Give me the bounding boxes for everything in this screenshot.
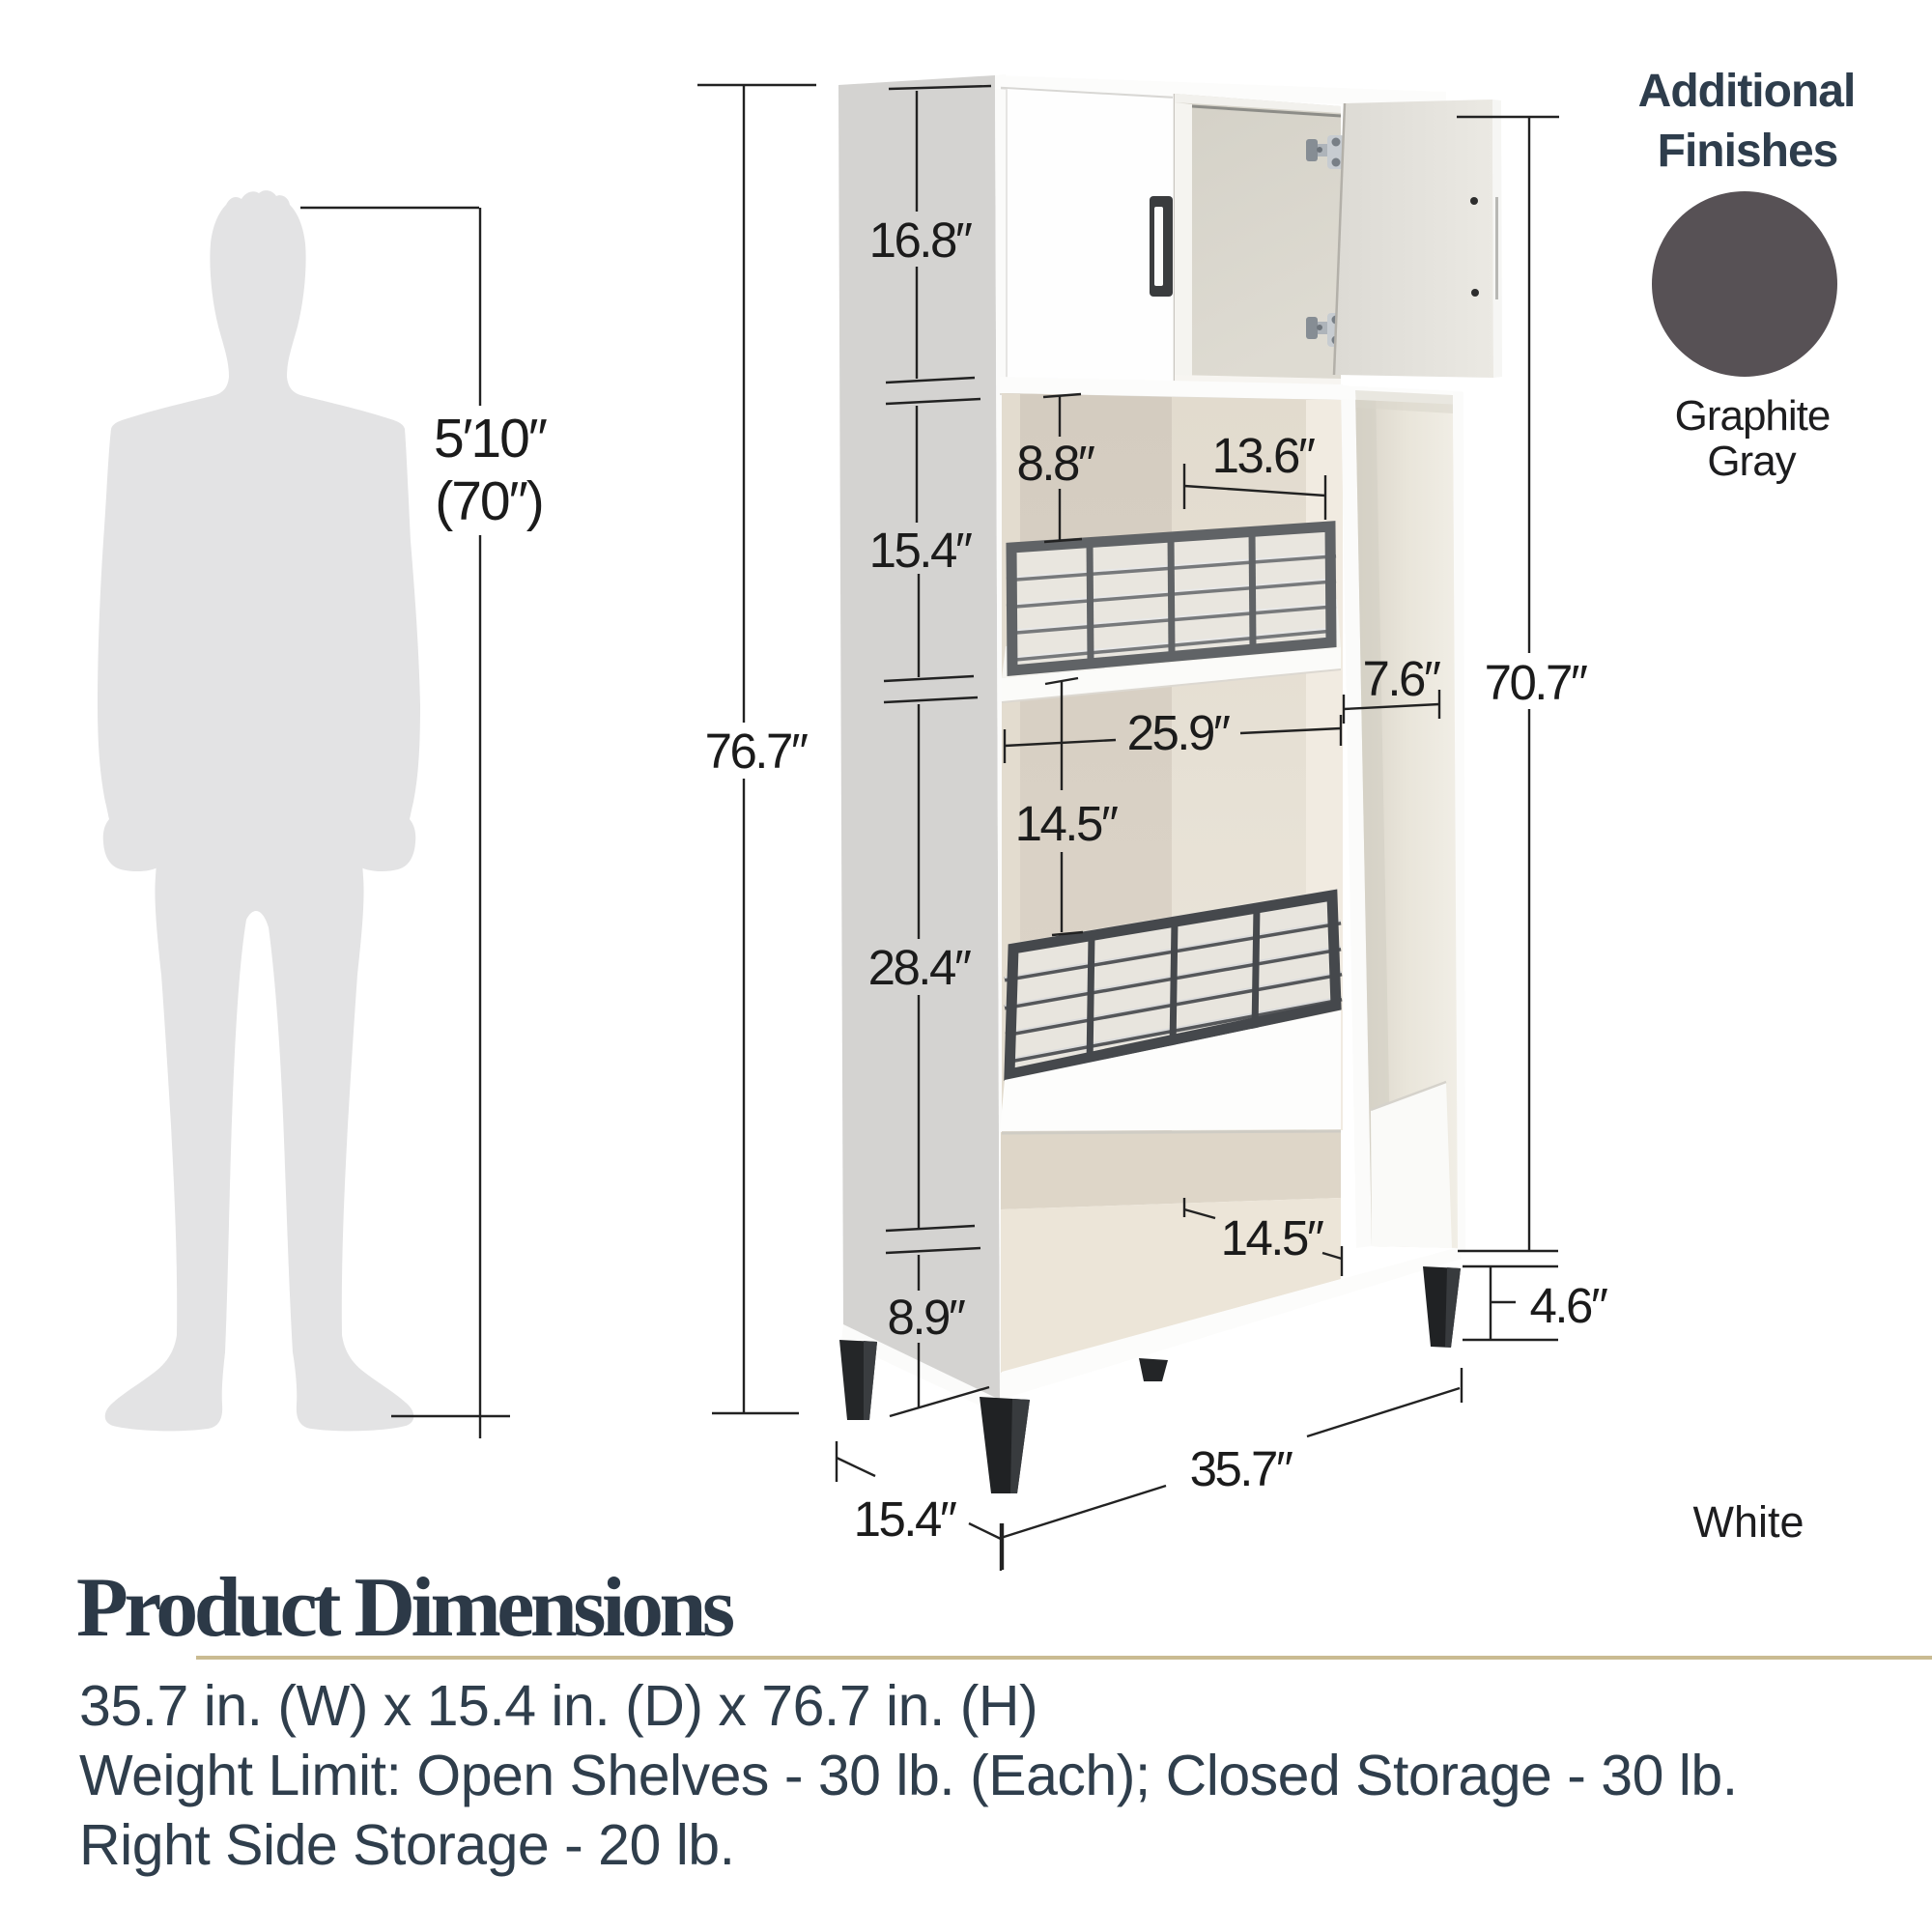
svg-text:5′10″: 5′10″ <box>434 408 548 469</box>
svg-text:7.6″: 7.6″ <box>1363 651 1441 706</box>
svg-text:25.9″: 25.9″ <box>1127 705 1231 760</box>
svg-text:Gray: Gray <box>1707 438 1796 485</box>
svg-text:15.4″: 15.4″ <box>854 1492 957 1547</box>
svg-text:15.4″: 15.4″ <box>869 523 973 578</box>
svg-text:28.4″: 28.4″ <box>868 940 972 995</box>
svg-text:White: White <box>1692 1497 1804 1547</box>
svg-text:Graphite: Graphite <box>1675 392 1831 440</box>
svg-text:4.6″: 4.6″ <box>1530 1278 1608 1333</box>
svg-text:(70″): (70″) <box>435 470 543 532</box>
svg-text:14.5″: 14.5″ <box>1015 796 1119 851</box>
svg-text:16.8″: 16.8″ <box>869 213 973 268</box>
svg-text:Product Dimensions: Product Dimensions <box>76 1561 734 1655</box>
svg-text:Additional: Additional <box>1638 66 1856 117</box>
svg-text:Weight Limit: Open Shelves - 3: Weight Limit: Open Shelves - 30 lb. (Eac… <box>79 1744 1738 1807</box>
svg-text:70.7″: 70.7″ <box>1485 655 1588 710</box>
svg-text:76.7″: 76.7″ <box>705 724 809 779</box>
svg-text:Finishes: Finishes <box>1658 126 1838 177</box>
svg-text:14.5″: 14.5″ <box>1221 1210 1324 1265</box>
svg-text:Right Side Storage - 20 lb.: Right Side Storage - 20 lb. <box>79 1813 735 1877</box>
svg-text:35.7″: 35.7″ <box>1190 1441 1293 1496</box>
svg-text:13.6″: 13.6″ <box>1212 428 1316 483</box>
svg-text:8.8″: 8.8″ <box>1017 436 1095 491</box>
svg-text:8.9″: 8.9″ <box>888 1290 966 1345</box>
svg-text:35.7 in. (W) x 15.4 in. (D) x: 35.7 in. (W) x 15.4 in. (D) x 76.7 in. (… <box>79 1674 1037 1738</box>
